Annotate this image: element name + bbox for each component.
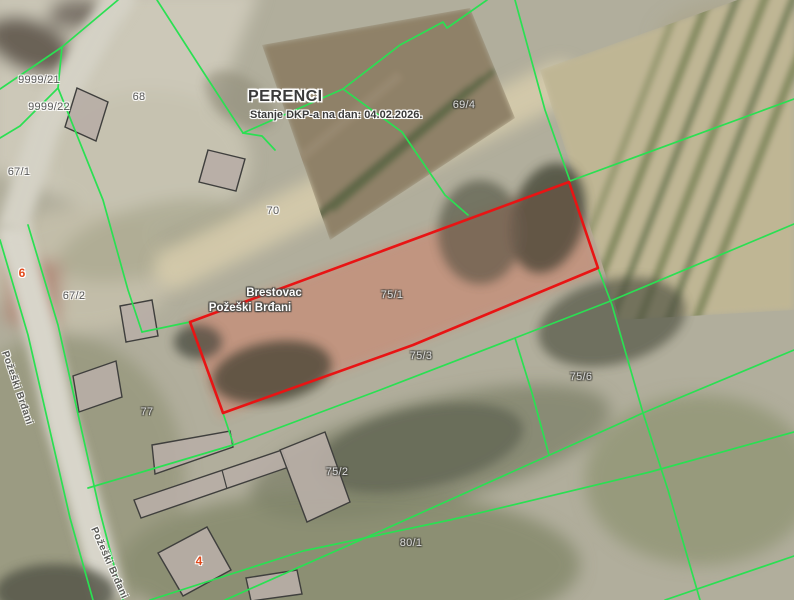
cadastral-map-canvas[interactable]: PERENCI Stanje DKP-a na dan: 04.02.2026.… (0, 0, 794, 600)
map-graphics-layer (0, 0, 794, 600)
